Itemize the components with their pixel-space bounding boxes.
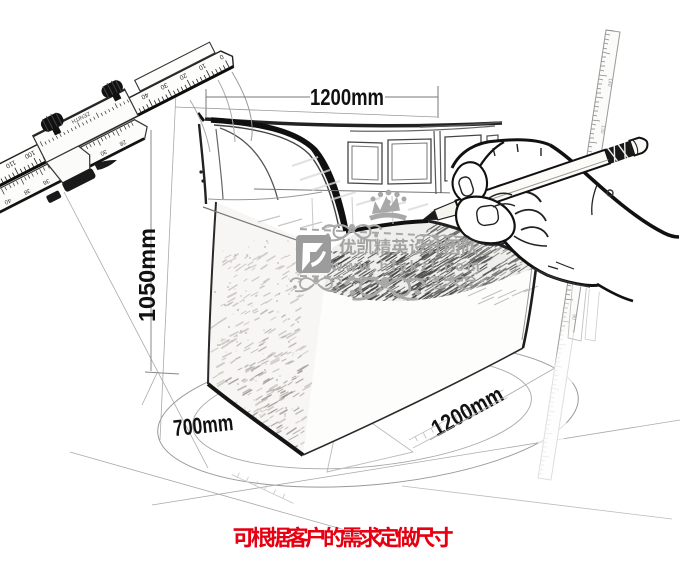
svg-text:1050mm: 1050mm xyxy=(134,228,160,322)
svg-text:www.hfykzl.com: www.hfykzl.com xyxy=(330,259,482,275)
svg-text:1200mm: 1200mm xyxy=(310,84,384,110)
